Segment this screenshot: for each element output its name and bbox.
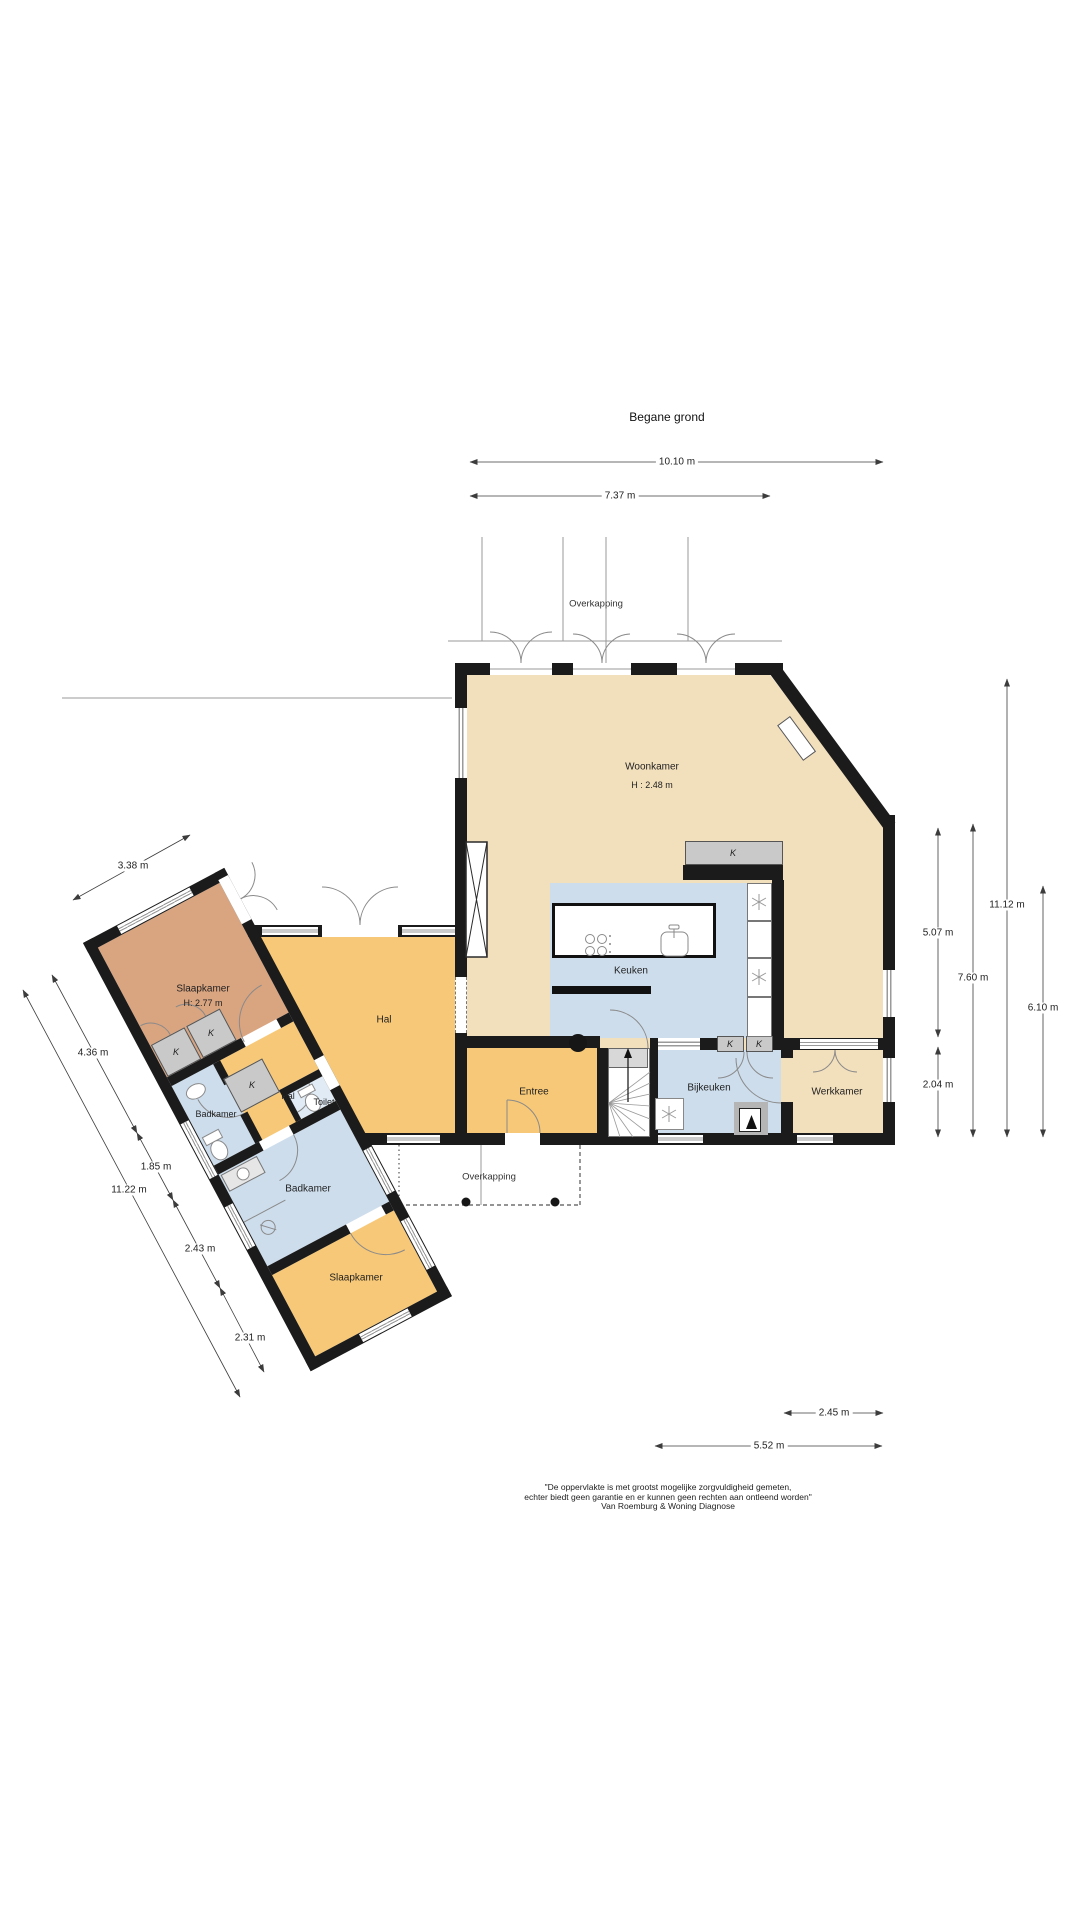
dim-right-2: 7.60 m bbox=[955, 973, 992, 984]
hob-icon bbox=[586, 935, 612, 956]
werkkamer-label: Werkkamer bbox=[812, 1087, 863, 1098]
dim-left-1: 3.38 m bbox=[115, 861, 152, 872]
sink-icon bbox=[661, 925, 688, 956]
dim-left-5: 2.43 m bbox=[182, 1244, 219, 1255]
floorplan-page: Begane grond Overkapping Overkapping Woo… bbox=[0, 0, 1080, 1920]
closet-label-wing-1: K bbox=[173, 1047, 179, 1057]
disclaimer: "De oppervlakte is met grootst mogelijke… bbox=[358, 1483, 978, 1512]
entree-label: Entree bbox=[519, 1087, 548, 1098]
closet-label-wing-3: K bbox=[249, 1080, 255, 1090]
closet-label-woonkamer: K bbox=[730, 848, 736, 858]
dim-right-1: 11.12 m bbox=[986, 900, 1027, 911]
woonkamer-height-label: H : 2.48 m bbox=[631, 780, 673, 790]
dim-bottom-2: 5.52 m bbox=[751, 1441, 788, 1452]
wing-hal-label: Hal bbox=[281, 1091, 295, 1101]
fridge-icon bbox=[752, 969, 766, 985]
closet-label-bijkeuken-1: K bbox=[727, 1039, 733, 1049]
stairs-direction-arrow bbox=[624, 1048, 632, 1102]
keuken-label: Keuken bbox=[614, 966, 648, 977]
dim-left-6: 2.31 m bbox=[232, 1333, 269, 1344]
vide-feature bbox=[466, 842, 487, 957]
bijkeuken-label: Bijkeuken bbox=[687, 1083, 730, 1094]
disclaimer-line-3: Van Roemburg & Woning Diagnose bbox=[358, 1502, 978, 1512]
stairs-treads bbox=[609, 1072, 650, 1137]
overkapping-bottom-label: Overkapping bbox=[462, 1172, 516, 1183]
dim-left-3: 1.85 m bbox=[138, 1162, 175, 1173]
slaapkamer1-label: Slaapkamer bbox=[176, 984, 229, 995]
freezer-icon bbox=[752, 894, 766, 910]
dim-top-1: 10.10 m bbox=[656, 457, 698, 468]
dim-top-2: 7.37 m bbox=[602, 491, 639, 502]
dim-left-4: 11.22 m bbox=[108, 1185, 149, 1196]
dim-left-2: 4.36 m bbox=[75, 1048, 112, 1059]
slaapkamer1-height-label: H: 2.77 m bbox=[183, 998, 222, 1008]
page-title: Begane grond bbox=[629, 410, 704, 424]
dim-right-4: 5.07 m bbox=[920, 928, 957, 939]
dim-right-5: 2.04 m bbox=[920, 1080, 957, 1091]
plan-fixtures bbox=[0, 0, 1080, 1920]
fireplace-icon bbox=[746, 1115, 757, 1129]
dim-right-3: 6.10 m bbox=[1025, 1003, 1062, 1014]
structural-column bbox=[569, 1034, 587, 1052]
hal-label: Hal bbox=[376, 1015, 391, 1026]
badkamer2-label: Badkamer bbox=[285, 1184, 331, 1195]
closet-label-bijkeuken-2: K bbox=[756, 1039, 762, 1049]
toilet-label: Toilet bbox=[313, 1097, 334, 1107]
dim-bottom-1: 2.45 m bbox=[816, 1408, 853, 1419]
washer-icon bbox=[662, 1106, 676, 1122]
overkapping-top-label: Overkapping bbox=[569, 599, 623, 610]
closet-label-wing-2: K bbox=[208, 1028, 214, 1038]
slaapkamer2-label: Slaapkamer bbox=[329, 1273, 382, 1284]
porch-post-2 bbox=[551, 1198, 560, 1207]
woonkamer-label: Woonkamer bbox=[625, 762, 679, 773]
porch-post-1 bbox=[462, 1198, 471, 1207]
badkamer1-label: Badkamer bbox=[195, 1109, 236, 1119]
